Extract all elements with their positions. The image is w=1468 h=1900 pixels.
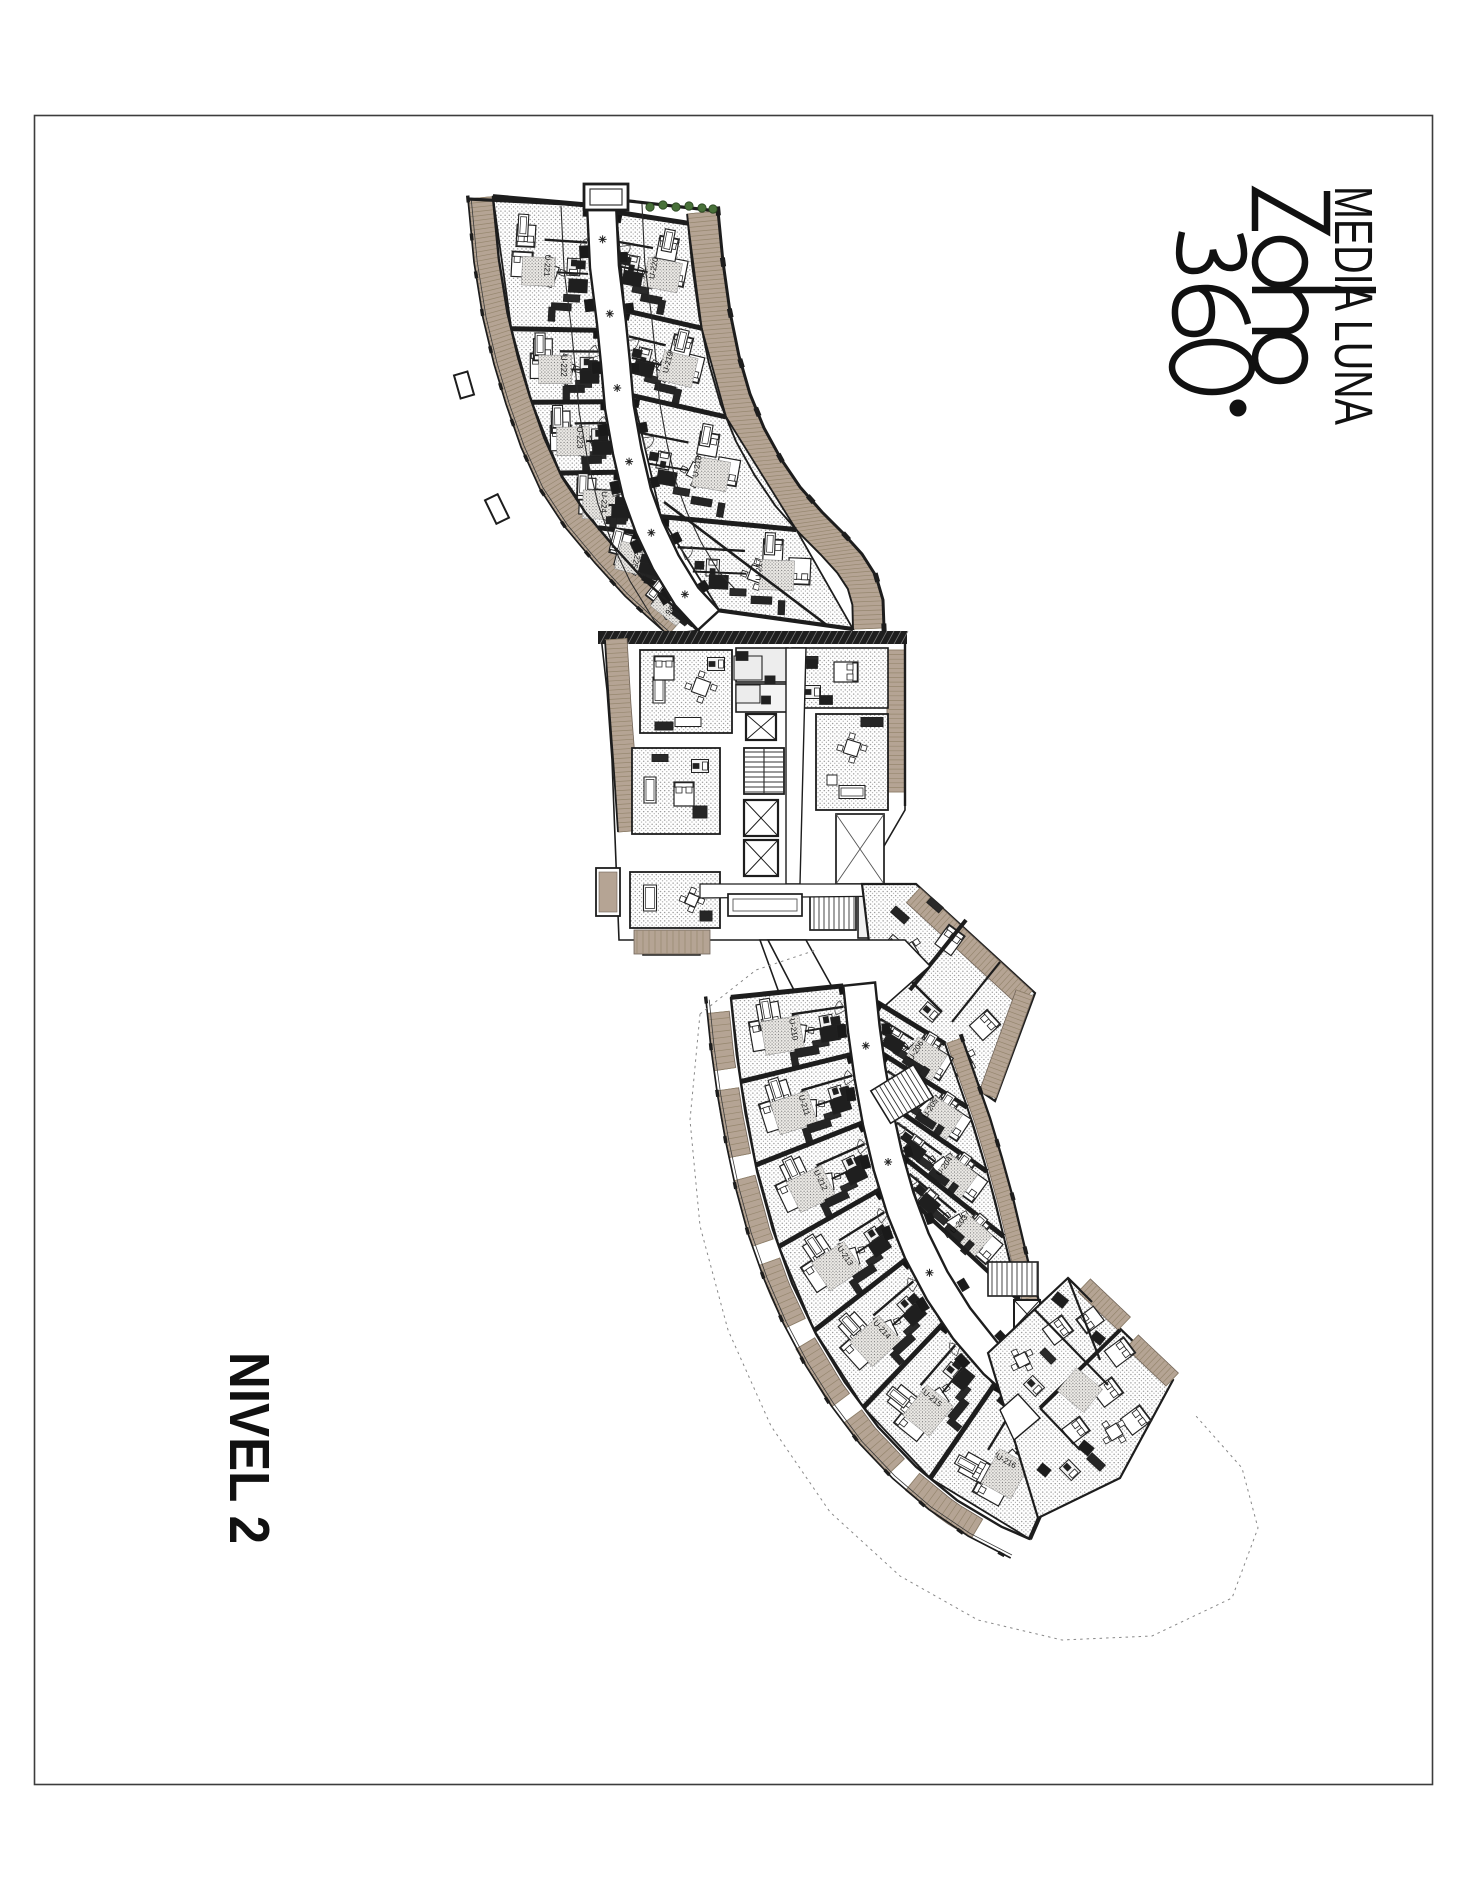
svg-text:U-222: U-222 bbox=[559, 355, 568, 377]
svg-text:NIVEL 2: NIVEL 2 bbox=[217, 1352, 281, 1544]
svg-text:U-223: U-223 bbox=[575, 427, 584, 449]
svg-text:U-221: U-221 bbox=[542, 254, 552, 277]
svg-text:MEDIA LUNA: MEDIA LUNA bbox=[1323, 186, 1383, 425]
